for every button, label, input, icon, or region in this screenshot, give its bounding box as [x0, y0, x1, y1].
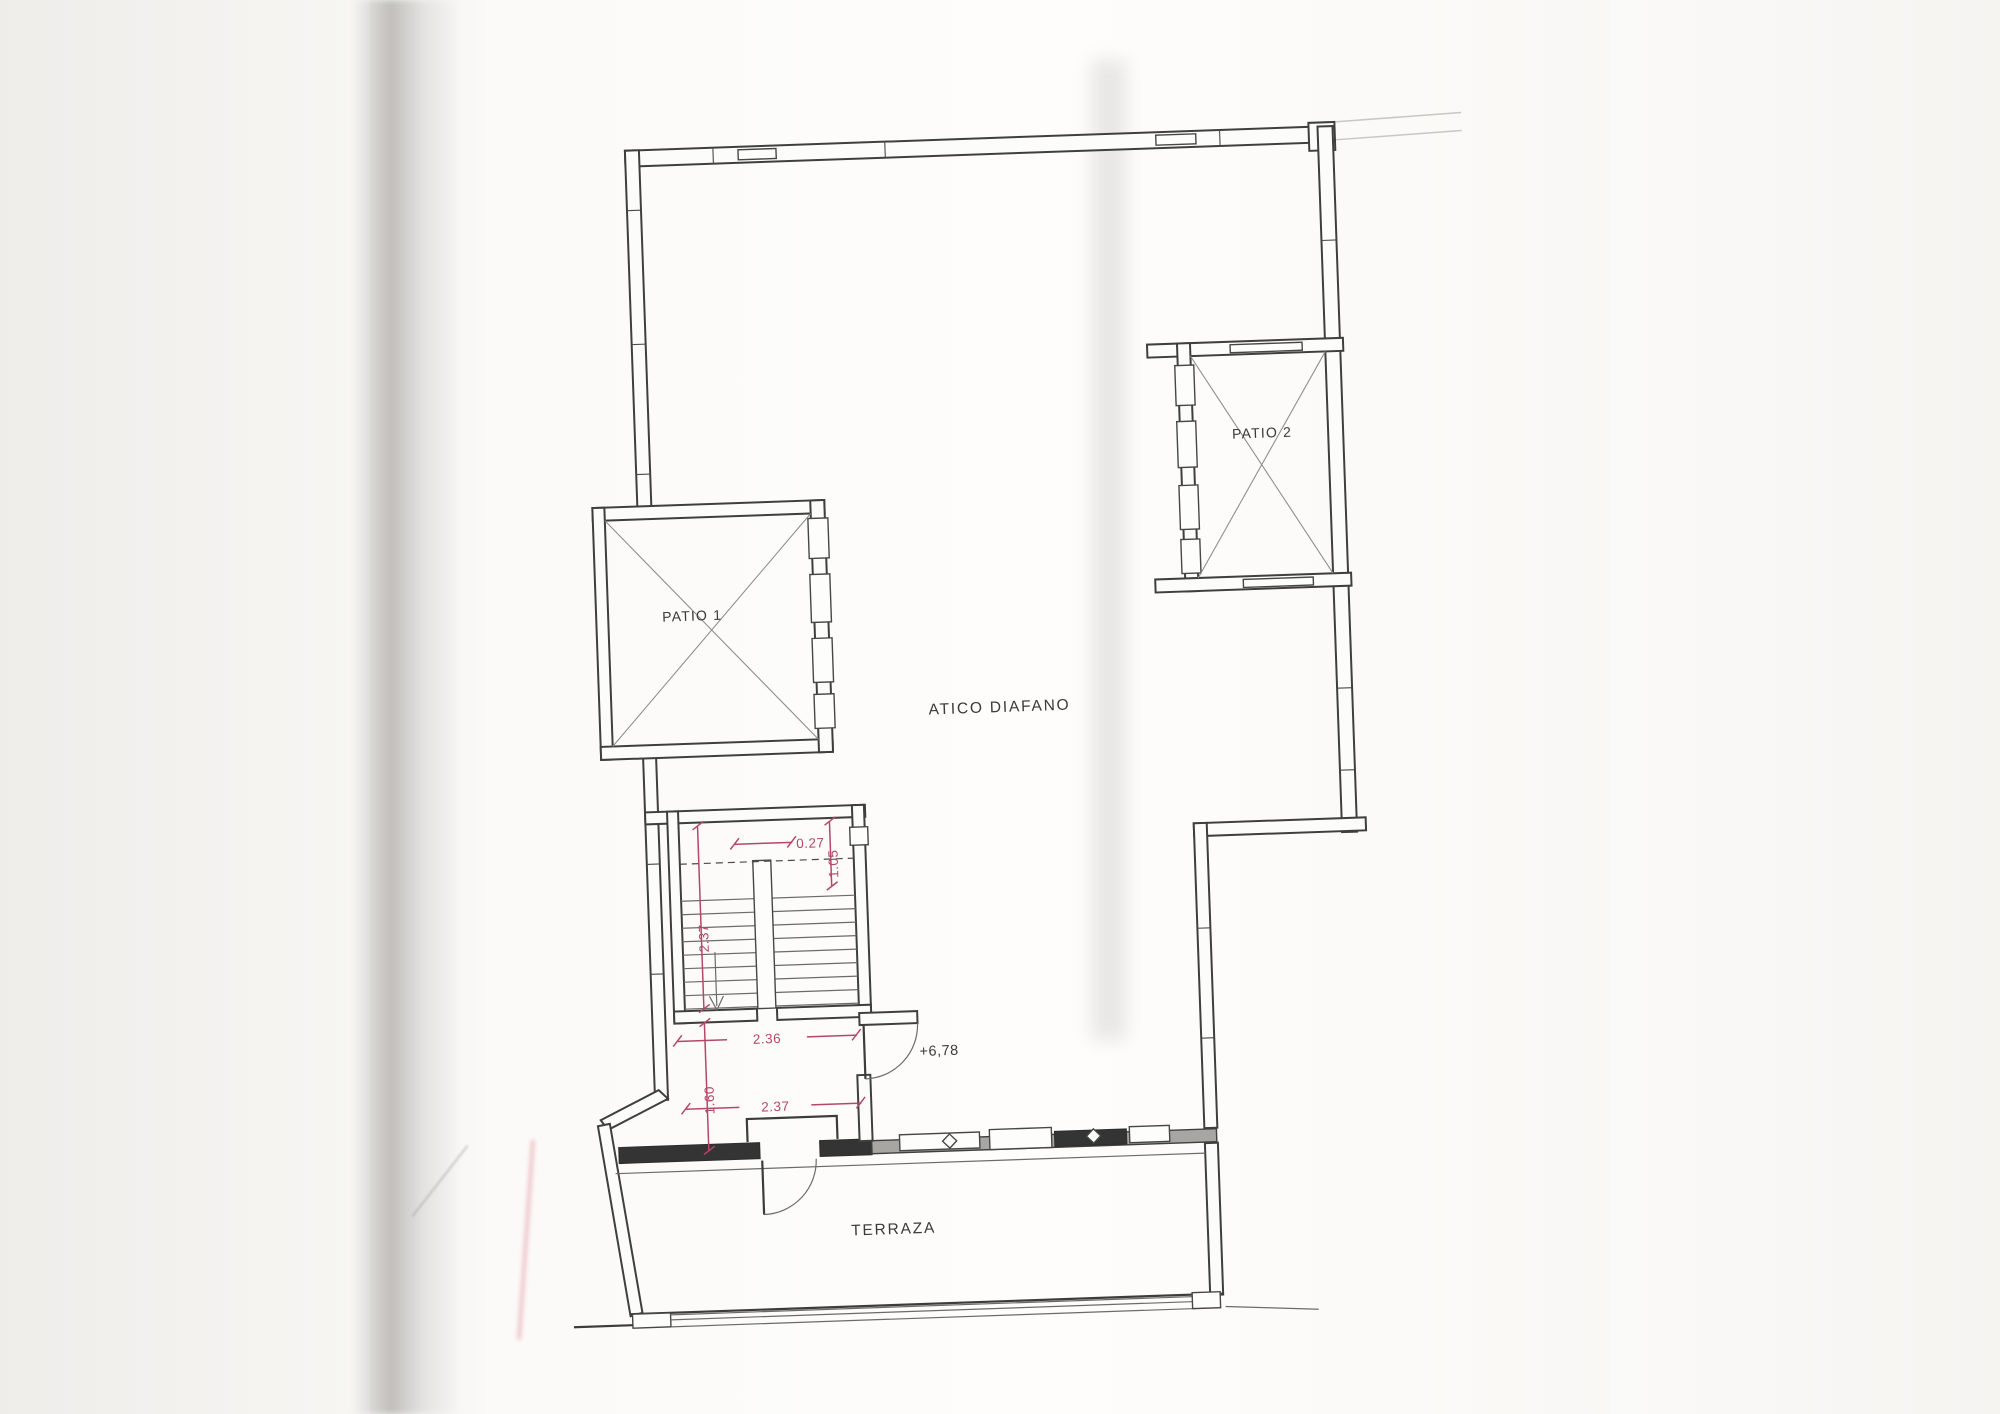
window-patio1-1 — [808, 518, 829, 559]
room-label-terraza: TERRAZA — [851, 1220, 936, 1240]
window-patio2-4 — [1181, 539, 1201, 574]
floor-plan-drawing: 0.27 1.05 2.37 2.36 1.60 — [0, 0, 2000, 1414]
wall-stair-bottom-right — [777, 1005, 871, 1020]
wall-step-horizontal — [1194, 817, 1366, 836]
window-patio2-1 — [1175, 365, 1195, 406]
threshold-step — [747, 1116, 838, 1142]
room-label-atico: ATICO DIAFANO — [928, 697, 1070, 719]
dim-stair-width: 2.36 — [753, 1031, 782, 1047]
baseline-right-extension — [1226, 1303, 1319, 1312]
room-label-patio-1: PATIO 1 — [662, 607, 723, 625]
window-patio2-bottom — [1243, 577, 1313, 587]
walls — [533, 113, 1503, 1336]
wall-terraza-right — [1205, 1143, 1223, 1295]
window-patio2-2 — [1177, 421, 1198, 468]
window-stair — [850, 827, 869, 846]
wall-extension-line — [1332, 131, 1462, 141]
patio2-diagonal — [1190, 351, 1333, 578]
wall-left-lower — [643, 754, 668, 1100]
window-top-1 — [738, 148, 776, 159]
window-patio1-2 — [810, 574, 832, 623]
scanned-floorplan-photo: 0.27 1.05 2.37 2.36 1.60 — [0, 0, 2000, 1414]
level-mark: +6,78 — [919, 1043, 959, 1060]
wall-step-vertical — [1194, 823, 1218, 1128]
dim-lower-width: 2.37 — [761, 1099, 790, 1115]
dim-landing-length: 1.60 — [702, 1086, 718, 1115]
stair-stringer — [753, 860, 776, 1009]
wall-patio1-left — [592, 508, 613, 760]
window-patio2-top — [1230, 342, 1302, 353]
window-patio1-3 — [812, 638, 834, 683]
door-leaf-stair — [864, 1025, 866, 1079]
wall-door-header — [859, 1011, 917, 1025]
baseline-left-extension — [574, 1325, 633, 1327]
wall-top — [625, 126, 1332, 167]
baseline-line — [671, 1296, 1206, 1315]
wall-patio1-top — [592, 500, 824, 521]
dim-stair-top-width: 0.27 — [796, 835, 825, 851]
patio1-diagonal — [605, 513, 819, 746]
room-label-patio-2: PATIO 2 — [1232, 424, 1293, 442]
wall-bottom-left — [619, 1143, 760, 1164]
wall-patio1-bottom — [601, 739, 833, 760]
window-bottom-3 — [1129, 1125, 1170, 1142]
stair-direction-line — [715, 952, 717, 1006]
door-arc-stair — [864, 1023, 920, 1079]
window-bottom-1 — [899, 1132, 980, 1151]
wall-right — [1317, 126, 1357, 832]
window-patio1-4 — [814, 694, 835, 729]
dim-landing-depth: 1.05 — [825, 849, 841, 878]
wall-left-upper — [625, 150, 652, 512]
window-top-2 — [1156, 134, 1196, 145]
wall-extension-line — [1331, 113, 1461, 123]
baseline-right-block — [1192, 1292, 1221, 1309]
baseline-left-block — [633, 1313, 671, 1328]
wall-stair-left — [667, 811, 685, 1023]
window-bottom-2 — [989, 1127, 1052, 1149]
window-patio2-3 — [1179, 485, 1200, 530]
dim-flight-length: 2.37 — [696, 924, 712, 953]
wall-stair-bottom-left — [674, 1009, 757, 1024]
wall-stub — [857, 1075, 872, 1141]
